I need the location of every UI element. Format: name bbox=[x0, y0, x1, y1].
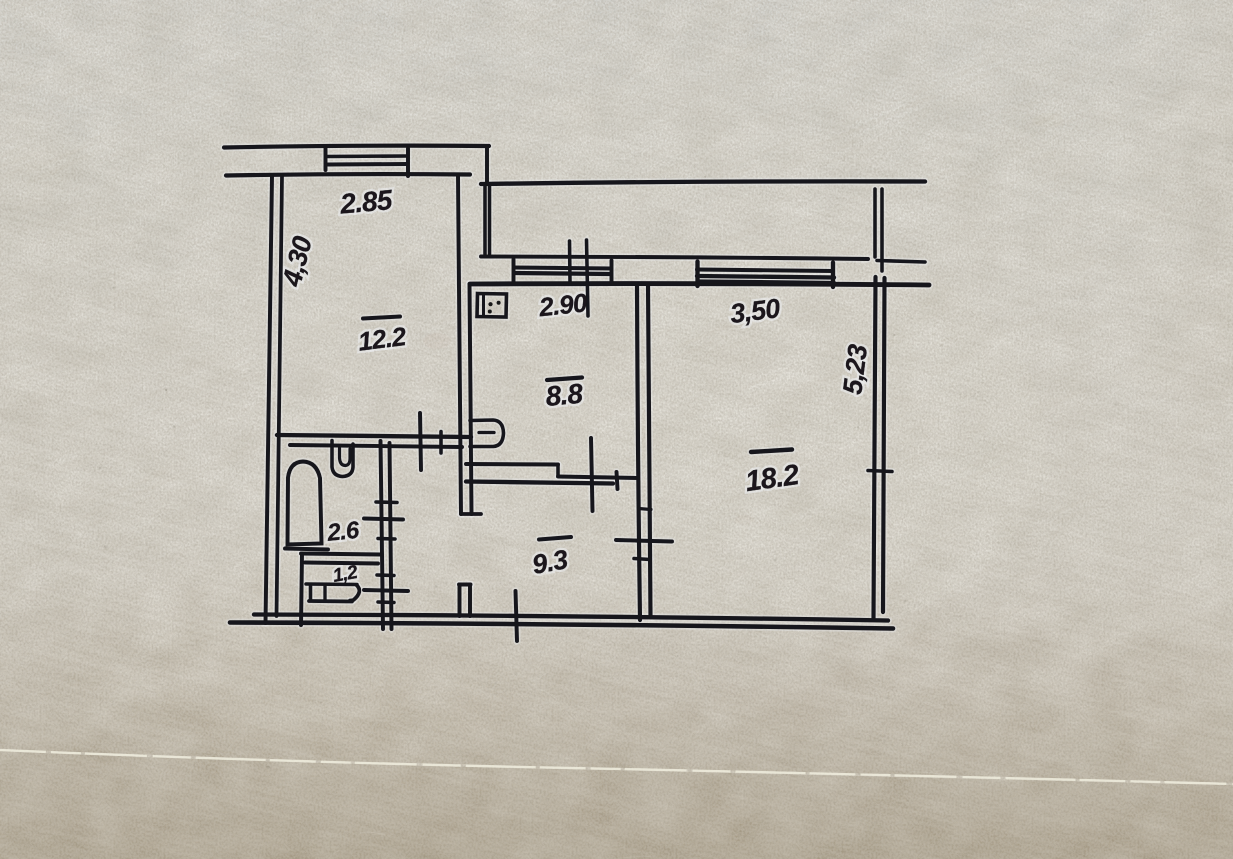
svg-text:1,2: 1,2 bbox=[331, 562, 360, 587]
svg-text:12.2: 12.2 bbox=[356, 321, 408, 357]
svg-text:9.3: 9.3 bbox=[530, 544, 571, 580]
svg-text:5,23: 5,23 bbox=[837, 343, 873, 396]
svg-text:2.85: 2.85 bbox=[338, 184, 394, 220]
svg-text:3,50: 3,50 bbox=[728, 293, 781, 329]
svg-text:8.8: 8.8 bbox=[544, 378, 584, 412]
svg-text:2.90: 2.90 bbox=[537, 287, 590, 322]
svg-text:2.6: 2.6 bbox=[325, 517, 361, 547]
